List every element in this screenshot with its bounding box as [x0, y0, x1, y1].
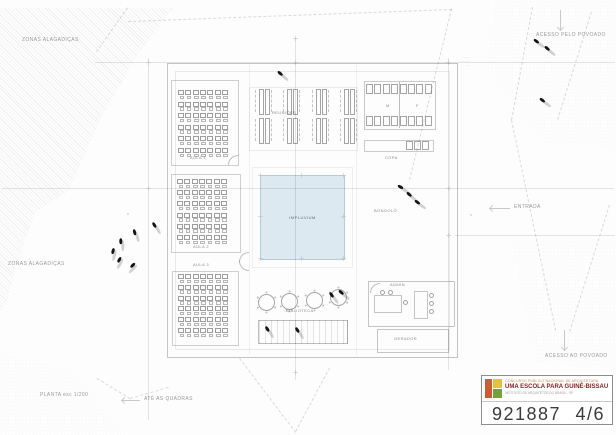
classroom-desk — [200, 296, 206, 301]
classroom-desk — [214, 201, 220, 206]
meeting-chairs — [328, 119, 329, 141]
grid-tick — [146, 186, 151, 191]
classroom-desk — [200, 113, 206, 118]
classroom-desk — [215, 306, 221, 311]
person-figure — [534, 38, 542, 46]
meeting-table — [350, 89, 355, 115]
classroom-desk — [215, 317, 221, 322]
plan-label: v — [127, 212, 129, 216]
classroom-desk — [215, 125, 221, 130]
classroom-desk — [221, 213, 227, 218]
classroom-desk — [185, 102, 191, 107]
classroom-desk — [177, 190, 183, 195]
meeting-chairs — [299, 119, 300, 141]
arrow-left-icon — [490, 205, 510, 212]
grid-line — [148, 58, 149, 420]
classroom-desk — [177, 224, 183, 229]
classroom-desk — [178, 328, 184, 333]
classroom-desk — [192, 201, 198, 206]
person-figure — [121, 256, 129, 264]
meeting-chairs — [283, 119, 284, 141]
person-figure — [540, 97, 548, 105]
fixture — [366, 84, 373, 94]
meeting-chairs — [271, 119, 272, 141]
classroom-desk — [185, 125, 191, 130]
classroom-desk — [185, 113, 191, 118]
classroom-desk — [184, 201, 190, 206]
meeting-chairs — [271, 90, 272, 112]
classroom-desk — [222, 296, 228, 301]
classroom-desk — [207, 285, 213, 290]
classroom-desk — [192, 213, 198, 218]
person-figure — [114, 247, 122, 255]
grid-tick — [293, 370, 298, 375]
classroom-desk — [192, 224, 198, 229]
classroom-desk — [222, 317, 228, 322]
meeting-table — [259, 89, 264, 115]
classroom-desk — [222, 90, 228, 95]
classroom-desk — [215, 328, 221, 333]
classroom-desk — [200, 317, 206, 322]
classroom-desk — [200, 102, 206, 107]
meeting-chairs — [312, 90, 313, 112]
classroom-desk — [214, 213, 220, 218]
meeting-table — [287, 118, 292, 144]
classroom-desk — [184, 213, 190, 218]
classroom-desk — [221, 235, 227, 240]
person-figure — [121, 237, 129, 245]
fixture — [400, 116, 407, 126]
meeting-table — [322, 89, 327, 115]
meeting-chairs — [328, 90, 329, 112]
classroom-desk — [184, 179, 190, 184]
meeting-chairs — [356, 90, 357, 112]
classroom-desk — [222, 328, 228, 333]
site-boundary-dashed-line — [295, 368, 330, 432]
classroom-desk — [178, 125, 184, 130]
classroom-desk — [207, 296, 213, 301]
wall-outline — [252, 167, 353, 268]
classroom-desk — [178, 113, 184, 118]
fixture — [391, 116, 398, 126]
classroom-desk — [193, 274, 199, 279]
logo-yellow-square — [493, 379, 502, 388]
classroom-desk — [207, 136, 213, 141]
library-round-table — [281, 293, 298, 310]
fixture — [366, 116, 373, 126]
chair — [429, 301, 434, 306]
library-round-table — [306, 292, 323, 309]
classroom-desk — [221, 201, 227, 206]
meeting-chairs — [340, 90, 341, 112]
classroom-desk — [221, 179, 227, 184]
title-block: CONCURSO PÚBLICO NACIONAL DE ARQUITETURA… — [481, 375, 613, 425]
chair — [380, 290, 385, 295]
meeting-chairs — [356, 119, 357, 141]
fixture — [414, 141, 421, 150]
grid-tick — [146, 60, 151, 65]
classroom-desk — [222, 113, 228, 118]
fixture — [406, 141, 413, 150]
classroom-desk — [185, 148, 191, 153]
classroom-desk — [214, 190, 220, 195]
classroom-desk — [178, 90, 184, 95]
terrain-dots-topright — [455, 0, 616, 150]
fixture — [408, 84, 415, 94]
chair — [429, 309, 434, 314]
classroom-desk — [192, 235, 198, 240]
meeting-table — [293, 118, 298, 144]
classroom-desk — [222, 274, 228, 279]
classroom-desk — [192, 179, 198, 184]
classroom-desk — [215, 113, 221, 118]
site-boundary-dashed-line — [128, 9, 452, 22]
classroom-desk — [199, 213, 205, 218]
classroom-desk — [185, 306, 191, 311]
classroom-desk — [185, 274, 191, 279]
classroom-desk — [214, 235, 220, 240]
arrow-left-icon — [122, 397, 140, 404]
classroom-desk — [199, 201, 205, 206]
plan-label: ACESSO PELO POVOADO — [536, 33, 606, 38]
logo-orange-bar — [485, 379, 492, 398]
person-figure — [415, 199, 423, 207]
classroom-desk — [222, 148, 228, 153]
classroom-desk — [177, 213, 183, 218]
meeting-chairs — [255, 90, 256, 112]
classroom-desk — [207, 113, 213, 118]
classroom-desk — [215, 274, 221, 279]
person-figure — [545, 45, 553, 53]
fixture — [422, 141, 429, 150]
architectural-plan-sheet: IMPLUVIUM ······· ········· ···· CONCURS… — [0, 0, 616, 435]
classroom-desk — [184, 190, 190, 195]
sheet-number: 4/6 — [575, 404, 605, 425]
chair — [403, 300, 408, 305]
classroom-desk — [177, 201, 183, 206]
classroom-desk — [193, 113, 199, 118]
plan-label: ZONAS ALAGADIÇAS — [8, 262, 65, 267]
plan-label: ENTRADA — [514, 205, 541, 210]
title-block-text: CONCURSO PÚBLICO NACIONAL DE ARQUITETURA… — [505, 379, 611, 395]
meeting-chairs — [255, 119, 256, 141]
library-round-table — [258, 294, 275, 311]
meeting-chairs — [299, 90, 300, 112]
classroom-desk — [177, 235, 183, 240]
classroom-desk — [178, 274, 184, 279]
logo-green-square — [493, 389, 502, 398]
classroom-desk — [214, 224, 220, 229]
site-boundary-dashed-line — [96, 378, 130, 399]
meeting-table — [344, 89, 349, 115]
classroom-desk — [207, 274, 213, 279]
classroom-desk — [222, 102, 228, 107]
classroom-desk — [193, 317, 199, 322]
classroom-desk — [207, 90, 213, 95]
entry-number: 921887 — [492, 404, 561, 425]
fixture — [416, 84, 423, 94]
person-figure — [339, 289, 347, 297]
competition-logo — [485, 379, 502, 398]
fixture — [408, 116, 415, 126]
classroom-desk — [178, 148, 184, 153]
classroom-desk — [185, 136, 191, 141]
classroom-desk — [185, 328, 191, 333]
classroom-desk — [200, 125, 206, 130]
person-figure — [278, 70, 286, 78]
title-block-header: CONCURSO PÚBLICO NACIONAL DE ARQUITETURA… — [482, 376, 612, 402]
chair — [429, 293, 434, 298]
classroom-desk — [215, 148, 221, 153]
meeting-table — [265, 118, 270, 144]
meeting-table — [293, 89, 298, 115]
grid-tick — [293, 36, 298, 41]
classroom-desk — [200, 306, 206, 311]
fixture — [374, 84, 381, 94]
arrow-down-icon — [557, 10, 564, 30]
classroom-desk — [193, 125, 199, 130]
classroom-desk — [193, 328, 199, 333]
wall-outline — [374, 295, 402, 313]
classroom-desk — [193, 90, 199, 95]
classroom-desk — [178, 296, 184, 301]
classroom-desk — [178, 102, 184, 107]
wall-outline — [377, 329, 449, 353]
classroom-desk — [185, 296, 191, 301]
classroom-desk — [200, 148, 206, 153]
fixture — [391, 84, 398, 94]
classroom-desk — [207, 328, 213, 333]
classroom-desk — [200, 328, 206, 333]
classroom-desk — [207, 317, 213, 322]
classroom-desk — [193, 148, 199, 153]
meeting-table — [344, 118, 349, 144]
classroom-desk — [207, 306, 213, 311]
classroom-desk — [200, 285, 206, 290]
classroom-desk — [206, 190, 212, 195]
classroom-desk — [185, 285, 191, 290]
person-figure — [407, 191, 415, 199]
person-figure — [135, 262, 143, 270]
classroom-desk — [178, 285, 184, 290]
classroom-desk — [178, 136, 184, 141]
red-annotation: ······· ········· ···· — [461, 55, 470, 67]
plan-label: ACESSO AO POVOADO — [545, 354, 608, 359]
classroom-desk — [206, 179, 212, 184]
classroom-desk — [207, 125, 213, 130]
classroom-desk — [199, 190, 205, 195]
classroom-desk — [193, 306, 199, 311]
person-figure — [296, 326, 304, 334]
classroom-desk — [185, 90, 191, 95]
classroom-desk — [184, 224, 190, 229]
classroom-desk — [215, 285, 221, 290]
classroom-desk — [222, 136, 228, 141]
meeting-chairs — [340, 119, 341, 141]
site-boundary-dashed-line — [239, 358, 296, 433]
arrow-down-icon — [561, 330, 568, 350]
person-figure — [398, 184, 406, 192]
meeting-table — [350, 118, 355, 144]
meeting-chairs — [312, 119, 313, 141]
competition-subtitle: UMA ESCOLA PARA GUINÉ-BISSAU — [505, 384, 611, 391]
classroom-desk — [193, 136, 199, 141]
classroom-desk — [215, 296, 221, 301]
fixture — [374, 116, 381, 126]
classroom-desk — [193, 102, 199, 107]
meeting-table — [316, 118, 321, 144]
classroom-desk — [200, 274, 206, 279]
competition-organizer: INSTITUTO DE ARQUITETOS DO BRASIL - SP — [505, 391, 611, 395]
meeting-table — [316, 89, 321, 115]
classroom-desk — [206, 213, 212, 218]
classroom-desk — [200, 136, 206, 141]
classroom-desk — [215, 90, 221, 95]
wall-outline — [414, 291, 428, 319]
person-figure — [330, 291, 338, 299]
fixture — [383, 84, 390, 94]
classroom-desk — [207, 148, 213, 153]
meeting-table — [287, 89, 292, 115]
fixture — [425, 84, 432, 94]
classroom-desk — [222, 285, 228, 290]
red-annotation-line: ···· — [461, 63, 470, 67]
fixture — [425, 116, 432, 126]
fixture — [400, 84, 407, 94]
classroom-desk — [206, 201, 212, 206]
classroom-desk — [199, 235, 205, 240]
meeting-table — [265, 89, 270, 115]
person-figure — [153, 221, 161, 229]
chair — [388, 290, 393, 295]
meeting-chairs — [283, 90, 284, 112]
plan-label: ATÉ AS QUADRAS — [144, 397, 193, 402]
plan-label: v — [470, 213, 472, 217]
terrain-dots-right — [500, 240, 616, 368]
classroom-desk — [221, 224, 227, 229]
classroom-desk — [214, 179, 220, 184]
classroom-desk — [199, 224, 205, 229]
classroom-desk — [178, 306, 184, 311]
classroom-desk — [206, 235, 212, 240]
competition-title: CONCURSO PÚBLICO NACIONAL DE ARQUITETURA — [505, 379, 611, 384]
classroom-desk — [222, 306, 228, 311]
classroom-desk — [178, 317, 184, 322]
classroom-desk — [206, 224, 212, 229]
meeting-table — [322, 118, 327, 144]
plan-label: ZONAS ALAGADIÇAS — [22, 38, 79, 43]
fixture — [383, 116, 390, 126]
classroom-desk — [215, 102, 221, 107]
title-block-numbers: 921887 4/6 — [482, 402, 612, 425]
meeting-table — [259, 118, 264, 144]
classroom-desk — [177, 179, 183, 184]
fixture — [416, 116, 423, 126]
classroom-desk — [200, 90, 206, 95]
classroom-desk — [207, 102, 213, 107]
classroom-desk — [222, 125, 228, 130]
classroom-desk — [185, 317, 191, 322]
classroom-desk — [221, 190, 227, 195]
classroom-desk — [184, 235, 190, 240]
person-figure — [266, 325, 274, 333]
classroom-desk — [199, 179, 205, 184]
person-figure — [134, 228, 142, 236]
classroom-desk — [192, 190, 198, 195]
plan-label: PLANTA esc 1/200 — [40, 393, 88, 398]
classroom-desk — [215, 136, 221, 141]
classroom-desk — [193, 296, 199, 301]
classroom-desk — [193, 285, 199, 290]
